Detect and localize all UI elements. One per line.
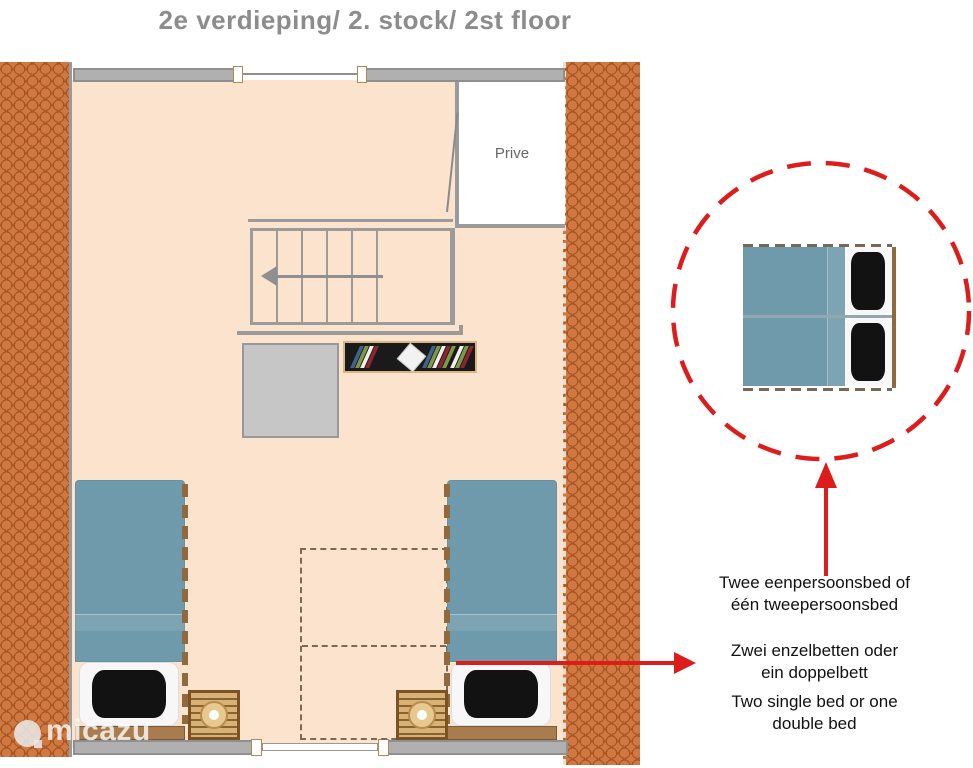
annotation-german: Zwei enzelbetten oder ein doppelbett xyxy=(672,640,957,684)
bed-frame xyxy=(743,388,892,391)
top-window-jamb-left xyxy=(233,66,243,83)
pillow xyxy=(851,252,885,310)
bottom-window-jamb-right xyxy=(378,739,389,756)
bed-frame xyxy=(182,484,188,724)
detail-bed-top xyxy=(743,247,892,315)
nightstand-knob xyxy=(200,701,228,729)
micazu-bubble-icon xyxy=(14,720,41,747)
bottom-wall-right-segment xyxy=(385,740,568,755)
bookshelf xyxy=(343,341,477,373)
blanket-fold xyxy=(447,614,557,631)
alternative-bed-divider xyxy=(302,645,446,647)
annotation-german-line1: Zwei enzelbetten oder xyxy=(731,641,898,660)
stairs-bottom-rail xyxy=(237,331,463,335)
annotation-german-line2: ein doppelbett xyxy=(761,663,868,682)
bed-blanket xyxy=(447,480,557,662)
stairs-top-rail xyxy=(248,219,453,222)
stairs-arrow-line xyxy=(275,275,383,278)
micazu-bubble-notch xyxy=(34,740,42,748)
pillow xyxy=(464,670,538,718)
private-room-label: Prive xyxy=(495,145,529,162)
annotation-english-line2: double bed xyxy=(772,714,856,733)
top-window-jamb-right xyxy=(357,66,367,83)
bed-frame xyxy=(444,484,450,724)
private-room: Prive xyxy=(455,82,565,228)
nightstand-right xyxy=(396,690,448,740)
roof-tiles-right xyxy=(563,62,640,765)
watermark-brand: micazu xyxy=(46,714,151,748)
bed-frame xyxy=(892,247,896,388)
annotation-dutch-line1: Twee eenpersoonsbed of xyxy=(719,573,910,592)
top-wall-right-segment xyxy=(360,68,565,82)
bed-blanket xyxy=(75,480,185,662)
headboard xyxy=(447,726,557,740)
page-title: 2e verdieping/ 2. stock/ 2st floor xyxy=(95,5,635,36)
blanket-fold xyxy=(75,614,185,631)
bed-mattress xyxy=(845,247,892,315)
bed-mattress xyxy=(451,662,551,726)
top-wall-left-segment xyxy=(73,68,237,82)
staircase xyxy=(250,228,455,325)
roof-tiles-left xyxy=(0,62,72,757)
blanket-fold xyxy=(827,247,845,315)
annotation-dutch: Twee eenpersoonsbed of één tweepersoonsb… xyxy=(672,572,957,616)
bottom-window-jamb-left xyxy=(251,739,262,756)
annotation-dutch-line2: één tweepersoonsbed xyxy=(731,595,898,614)
pillow xyxy=(92,670,166,718)
single-bed-right xyxy=(447,480,557,742)
pillow xyxy=(851,323,885,381)
top-window xyxy=(243,73,361,75)
nightstand-knob-hole xyxy=(417,710,427,720)
bed-mattress xyxy=(845,318,892,386)
arrow-up-icon xyxy=(815,462,837,488)
annotation-english: Two single bed or one double bed xyxy=(672,691,957,735)
detail-pointer-line xyxy=(824,488,828,576)
closet xyxy=(242,343,339,438)
stairs-rail-end xyxy=(459,325,463,335)
detail-bed-bottom xyxy=(743,318,892,386)
nightstand-knob xyxy=(408,701,436,729)
nightstand-left xyxy=(188,690,240,740)
bed-annotations: Twee eenpersoonsbed of één tweepersoonsb… xyxy=(672,572,957,735)
annotation-english-line1: Two single bed or one xyxy=(731,692,897,711)
nightstand-knob-hole xyxy=(209,710,219,720)
bed-pointer-line xyxy=(456,661,676,665)
double-bed-detail xyxy=(743,247,896,388)
floorplan-image: 2e verdieping/ 2. stock/ 2st floor Prive xyxy=(0,0,973,768)
blanket-fold xyxy=(827,318,845,386)
single-bed-left xyxy=(75,480,185,742)
bottom-window xyxy=(262,743,378,751)
arrow-left-icon xyxy=(261,266,277,286)
